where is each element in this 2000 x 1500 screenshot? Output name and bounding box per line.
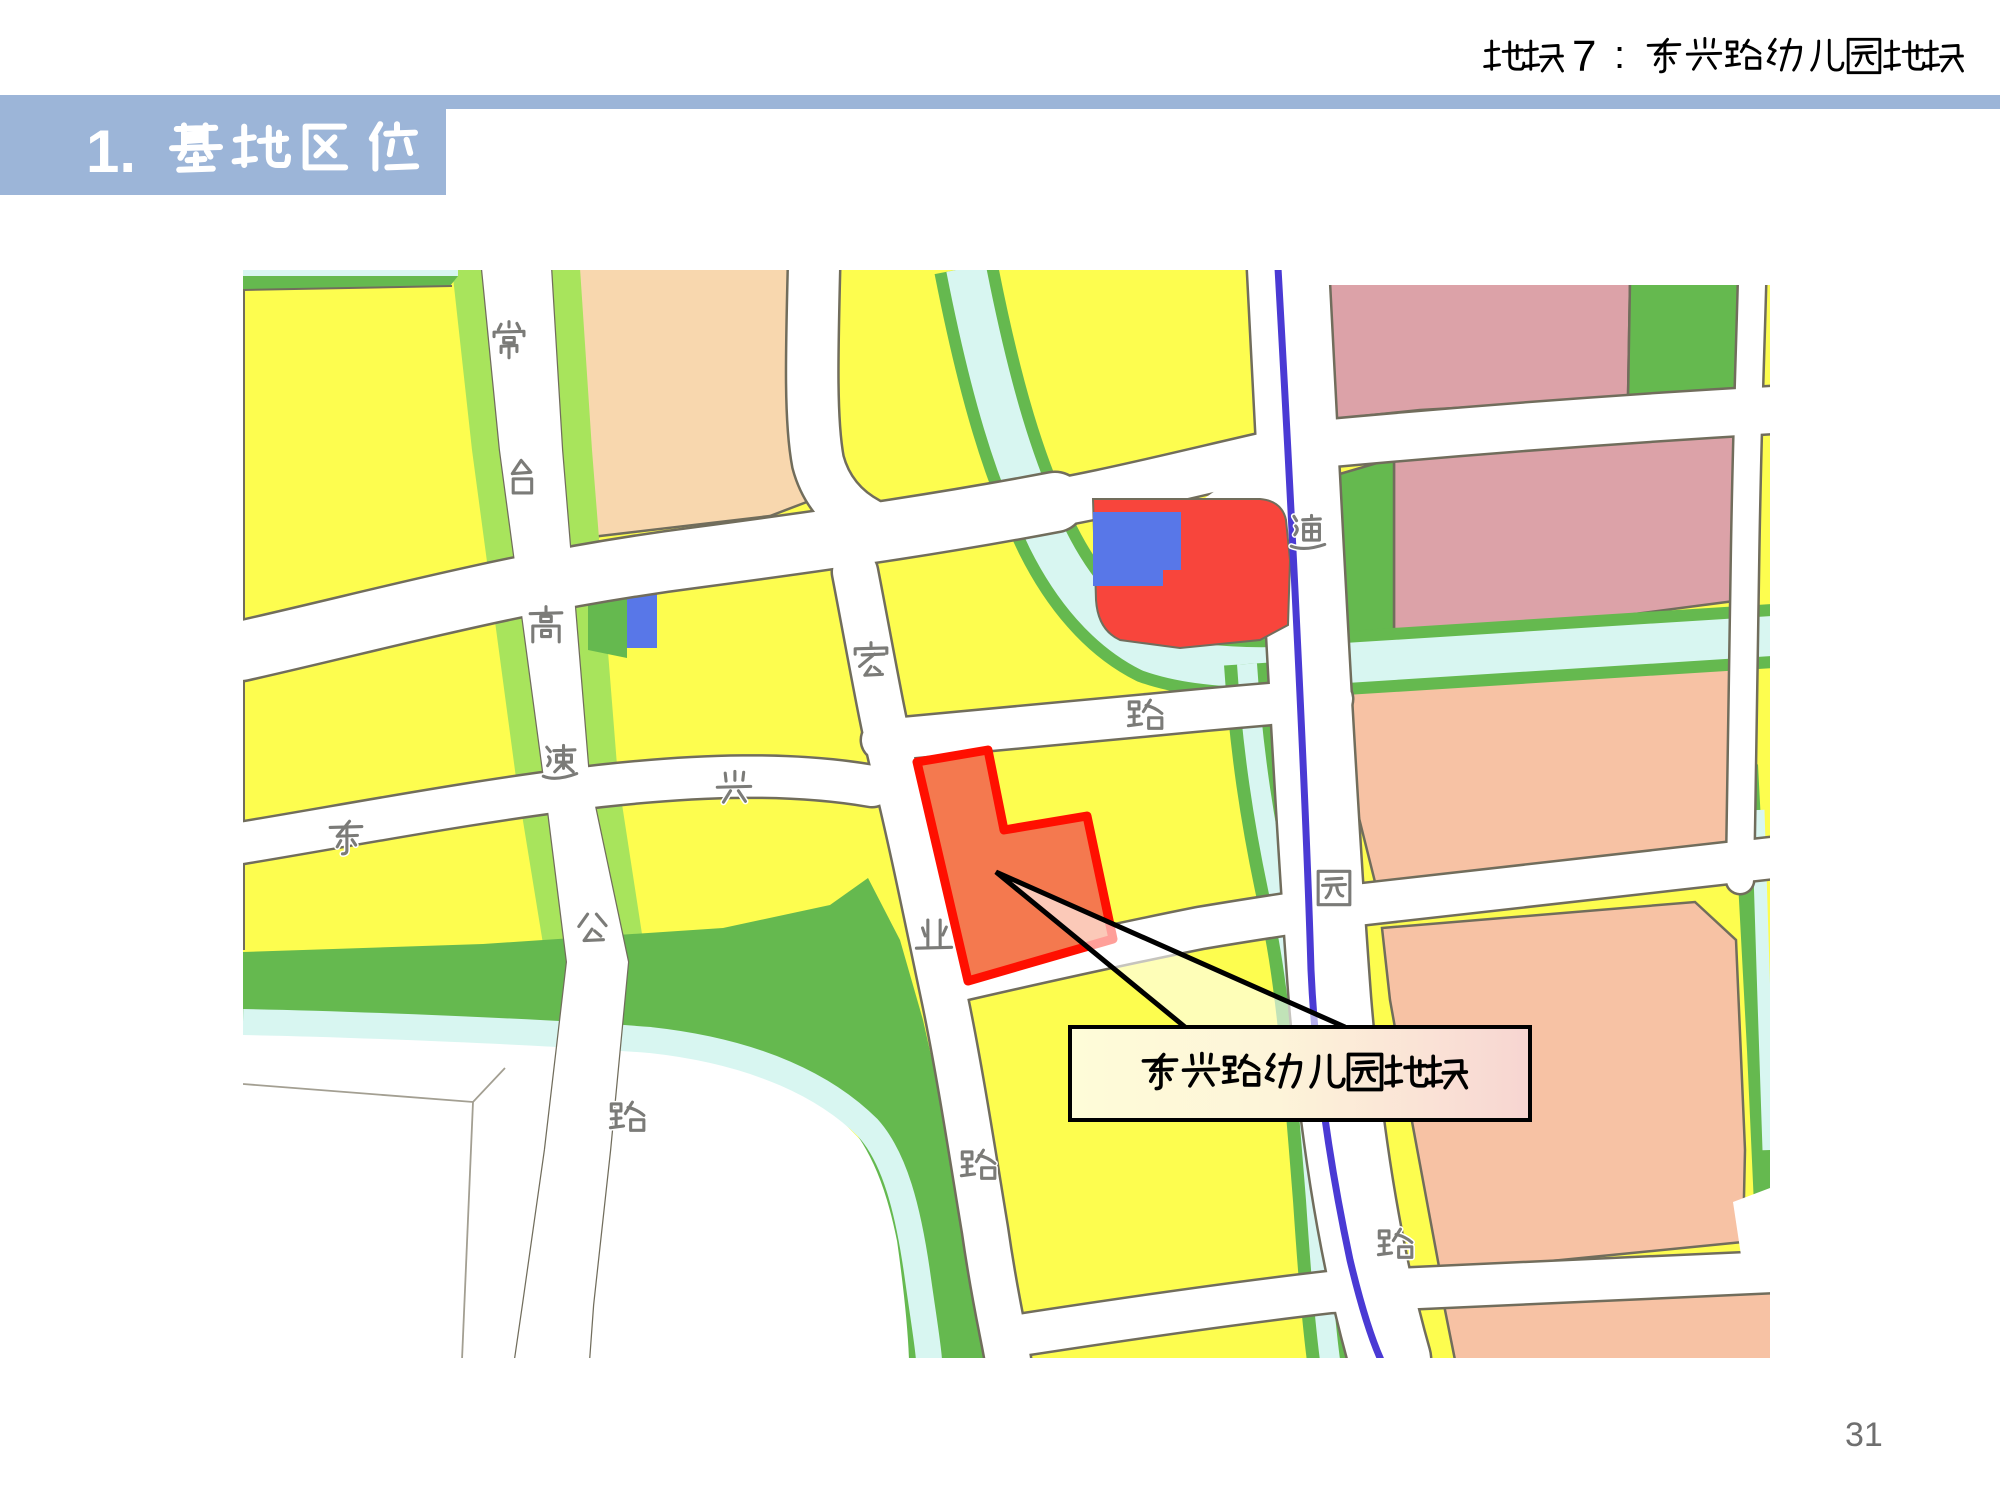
svg-text:7: 7 [1572,32,1596,81]
svg-text:31: 31 [1845,1416,1883,1454]
svg-text::: : [1614,33,1625,77]
svg-text:1.: 1. [86,118,136,185]
